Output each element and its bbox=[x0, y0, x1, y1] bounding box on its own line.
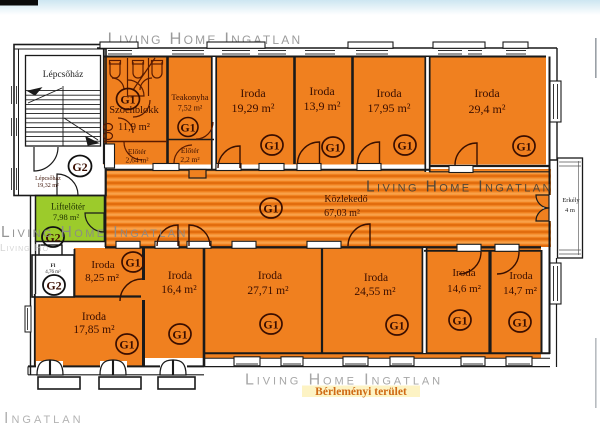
svg-text:8,25 m²: 8,25 m² bbox=[85, 272, 120, 284]
svg-text:Iroda: Iroda bbox=[240, 86, 266, 100]
svg-text:Iroda: Iroda bbox=[82, 311, 106, 323]
svg-text:G1: G1 bbox=[397, 139, 412, 153]
svg-text:Iroda: Iroda bbox=[309, 84, 335, 98]
svg-text:14,7 m²: 14,7 m² bbox=[503, 285, 538, 297]
svg-text:Ingatlan: Ingatlan bbox=[4, 410, 84, 427]
svg-text:G1: G1 bbox=[180, 121, 195, 135]
svg-text:Iroda: Iroda bbox=[452, 267, 475, 279]
svg-text:Living Ho: Living Ho bbox=[0, 243, 49, 254]
svg-text:14,6 m²: 14,6 m² bbox=[447, 283, 482, 295]
svg-text:G1: G1 bbox=[264, 139, 279, 153]
svg-text:G1: G1 bbox=[119, 338, 134, 352]
svg-text:G1: G1 bbox=[172, 328, 187, 342]
svg-text:G1: G1 bbox=[516, 140, 531, 154]
svg-text:27,71 m²: 27,71 m² bbox=[247, 285, 289, 297]
svg-text:11,9 m²: 11,9 m² bbox=[118, 122, 150, 133]
svg-text:Teakonyha: Teakonyha bbox=[171, 92, 208, 102]
svg-text:G2: G2 bbox=[72, 160, 87, 174]
svg-text:Iroda: Iroda bbox=[258, 270, 282, 282]
svg-text:Iroda: Iroda bbox=[91, 259, 114, 271]
svg-text:G1: G1 bbox=[452, 314, 467, 328]
svg-text:Lépcsőház: Lépcsőház bbox=[43, 70, 84, 80]
svg-text:G1: G1 bbox=[120, 93, 135, 107]
svg-text:4,76 m²: 4,76 m² bbox=[45, 269, 61, 275]
svg-text:16,4 m²: 16,4 m² bbox=[161, 284, 197, 296]
svg-text:Lépcsőház: Lépcsőház bbox=[35, 176, 61, 182]
svg-text:Közlekedő: Közlekedő bbox=[324, 194, 367, 205]
svg-text:G2: G2 bbox=[46, 279, 61, 293]
svg-text:7,52 m²: 7,52 m² bbox=[178, 104, 203, 113]
svg-text:Living Home Ingatlan: Living Home Ingatlan bbox=[366, 179, 553, 196]
svg-text:17,85 m²: 17,85 m² bbox=[73, 324, 115, 336]
svg-text:Fl: Fl bbox=[51, 263, 56, 269]
svg-text:29,4 m²: 29,4 m² bbox=[469, 102, 506, 116]
svg-text:4 m: 4 m bbox=[565, 207, 575, 214]
svg-text:17,95 m²: 17,95 m² bbox=[368, 101, 411, 115]
svg-text:Iroda: Iroda bbox=[376, 86, 402, 100]
svg-text:7,98 m²: 7,98 m² bbox=[53, 212, 80, 222]
svg-text:Living Home Ingatlan: Living Home Ingatlan bbox=[1, 224, 188, 241]
svg-text:G1: G1 bbox=[263, 318, 278, 332]
svg-text:19,29 m²: 19,29 m² bbox=[232, 101, 275, 115]
svg-text:G1: G1 bbox=[263, 202, 278, 216]
svg-text:24,55 m²: 24,55 m² bbox=[354, 286, 396, 298]
svg-text:Erkély: Erkély bbox=[562, 197, 580, 204]
svg-text:Iroda: Iroda bbox=[509, 270, 532, 282]
svg-text:G1: G1 bbox=[325, 141, 340, 155]
svg-text:19,32 m²: 19,32 m² bbox=[37, 183, 59, 189]
svg-text:G1: G1 bbox=[512, 316, 527, 330]
svg-text:G1: G1 bbox=[389, 319, 404, 333]
svg-text:13,9 m²: 13,9 m² bbox=[304, 99, 341, 113]
svg-text:Liftelőtér: Liftelőtér bbox=[51, 202, 85, 212]
svg-text:Bérleményi terület: Bérleményi terület bbox=[315, 386, 407, 398]
svg-text:Szochblokk: Szochblokk bbox=[109, 105, 159, 116]
svg-text:67,03 m²: 67,03 m² bbox=[324, 208, 360, 219]
svg-text:Iroda: Iroda bbox=[168, 270, 192, 282]
svg-text:Iroda: Iroda bbox=[364, 272, 388, 284]
svg-text:G1: G1 bbox=[125, 256, 140, 270]
svg-text:2,2 m²: 2,2 m² bbox=[180, 155, 200, 164]
svg-text:2,64 m²: 2,64 m² bbox=[125, 156, 149, 165]
svg-text:Iroda: Iroda bbox=[474, 86, 500, 100]
